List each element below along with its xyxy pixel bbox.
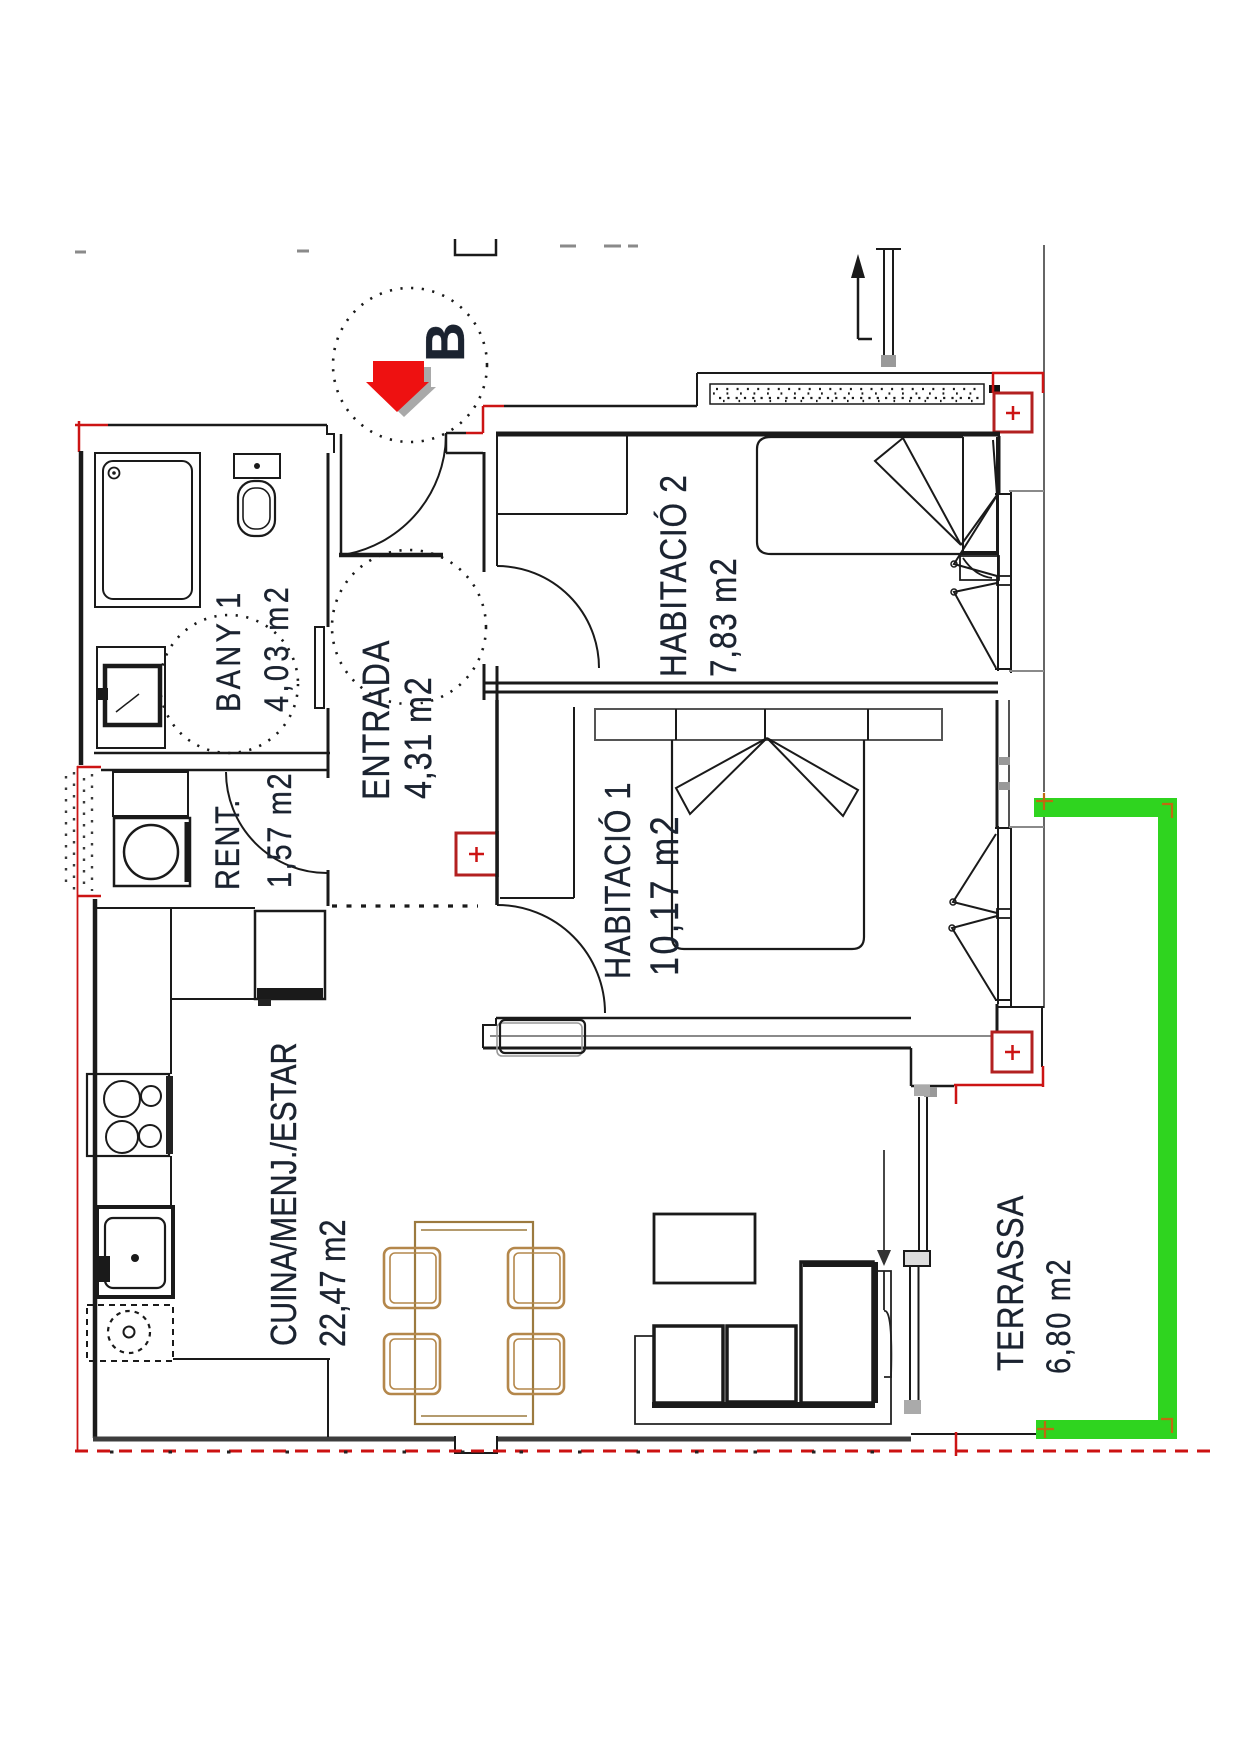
svg-text:HABITACIÓ 1: HABITACIÓ 1	[598, 782, 639, 979]
svg-text:BANY 1: BANY 1	[209, 589, 248, 712]
svg-text:7,83 m2: 7,83 m2	[704, 557, 745, 677]
svg-text:TERRASSA: TERRASSA	[991, 1195, 1032, 1371]
svg-text:HABITACIÓ 2: HABITACIÓ 2	[653, 474, 695, 677]
svg-text:ENTRADA: ENTRADA	[356, 640, 398, 800]
svg-text:10,17 m2: 10,17 m2	[641, 814, 686, 976]
svg-text:22,47 m2: 22,47 m2	[314, 1219, 354, 1347]
svg-text:RENT.: RENT.	[208, 798, 247, 890]
svg-text:4,03 m2: 4,03 m2	[257, 584, 296, 712]
svg-text:1,57 m2: 1,57 m2	[260, 772, 299, 888]
svg-text:B: B	[414, 322, 476, 362]
svg-text:CUINA/MENJ./ESTAR: CUINA/MENJ./ESTAR	[265, 1042, 305, 1346]
svg-text:6,80 m2: 6,80 m2	[1039, 1258, 1078, 1374]
svg-text:4,31 m2: 4,31 m2	[398, 676, 440, 799]
